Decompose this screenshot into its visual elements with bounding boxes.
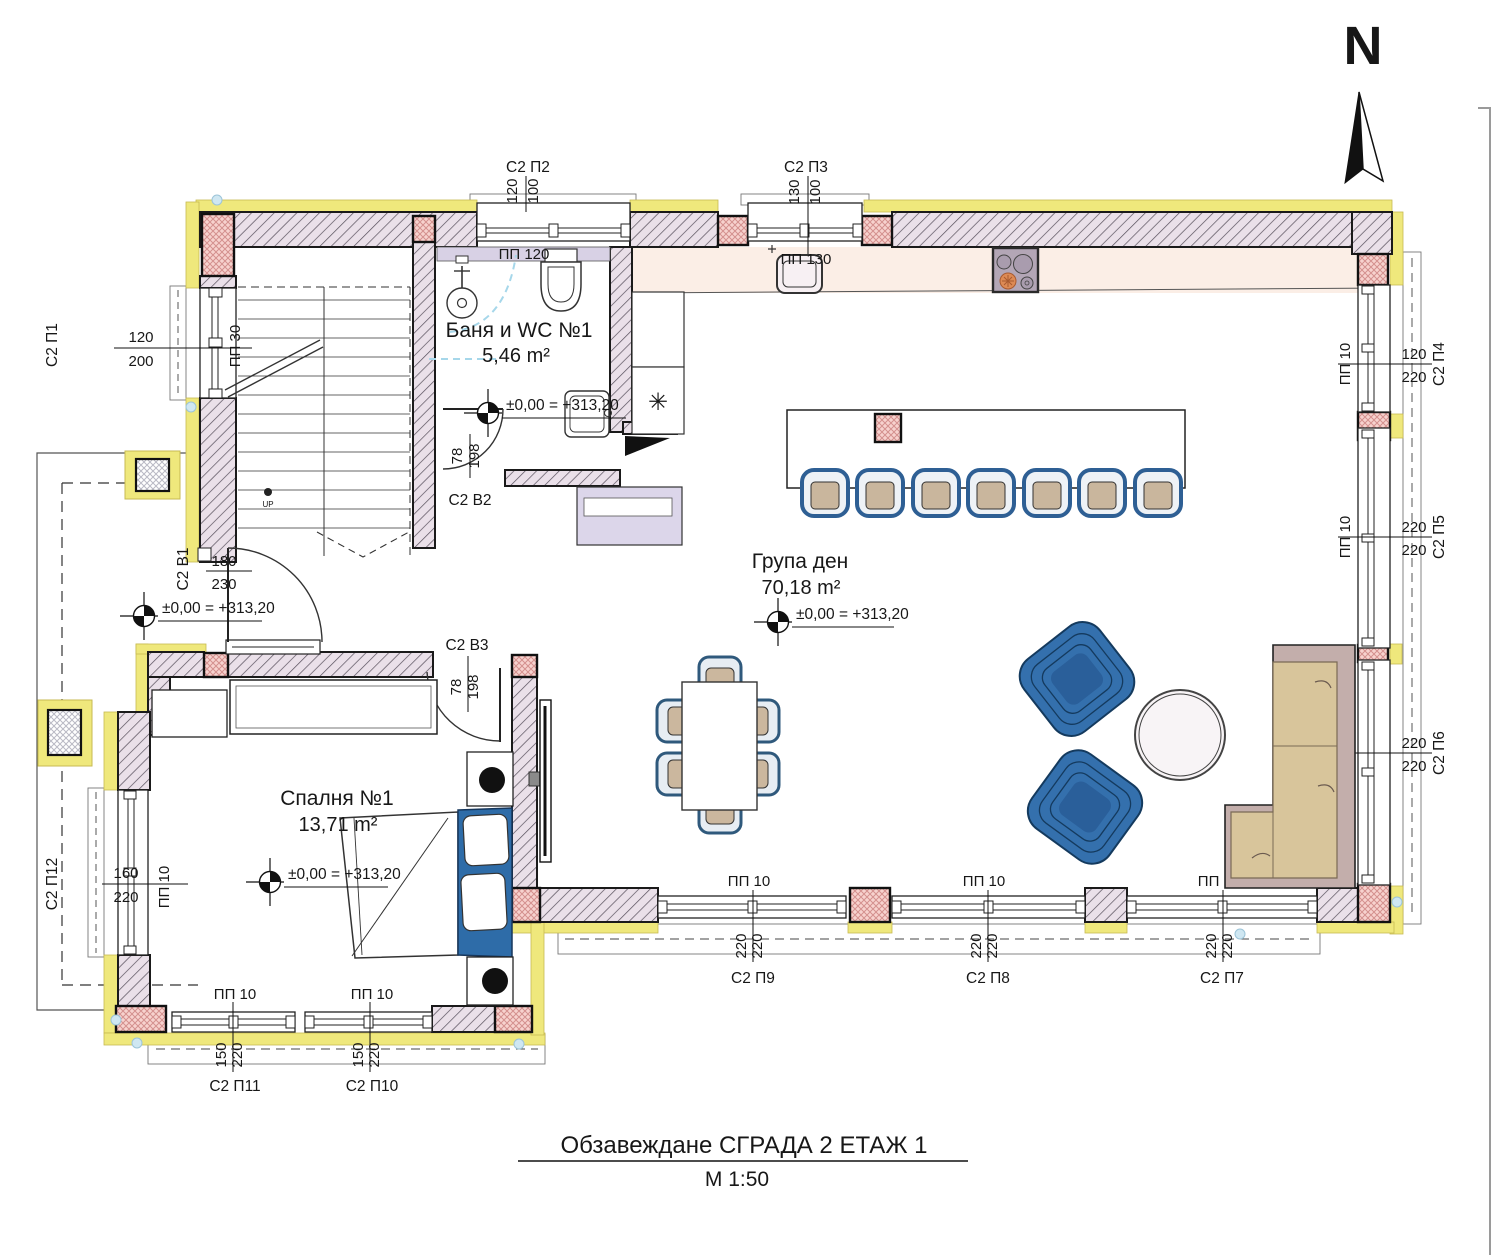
window-p8-dim2: 220 <box>984 933 1001 958</box>
lamp-icon <box>479 767 505 793</box>
door-v1-tag: С2 В1 <box>175 547 192 590</box>
lamp-icon <box>482 968 508 994</box>
elevation-text: ±0,00 = +313,20 <box>506 397 619 414</box>
pillow <box>461 873 508 931</box>
dining-table <box>682 682 757 810</box>
north-arrow: N <box>1344 16 1384 183</box>
drawing-title: Обзавеждане СГРАДА 2 ЕТАЖ 1 <box>560 1132 927 1159</box>
door-v3: С2 В3 78 198 <box>427 637 500 742</box>
room-label-bedroom: Спалня №1 <box>280 787 393 810</box>
window-p3-dim1: 130 <box>786 179 803 204</box>
snowflake-icon: ✳ <box>648 389 668 416</box>
window-p1-pp: ПП 30 <box>227 325 244 367</box>
room-area-living: 70,18 m² <box>762 577 841 599</box>
bar-stool <box>968 470 1014 516</box>
nightstand <box>467 957 513 1005</box>
window-p10-pp: ПП 10 <box>351 986 393 1003</box>
island-column <box>875 414 901 442</box>
room-labels: Баня и WC №1 5,46 m² Група ден 70,18 m² … <box>280 246 848 836</box>
bar-stool <box>1079 470 1125 516</box>
lounge <box>529 613 1355 888</box>
window-p10-dim1: 150 <box>350 1042 367 1067</box>
door-v3-dim2: 198 <box>465 674 482 699</box>
stairs: UP <box>225 287 410 557</box>
window-p11-dim2: 220 <box>229 1042 246 1067</box>
window-p7-tag: С2 П7 <box>1200 970 1244 987</box>
shower-icon <box>447 256 477 318</box>
window-p7-dim1: 220 <box>1203 933 1220 958</box>
sofa <box>1225 645 1355 888</box>
window-p11-dim1: 150 <box>213 1042 230 1067</box>
room-area-bath: 5,46 m² <box>482 345 550 367</box>
door-v1-dim2: 230 <box>211 576 236 593</box>
window-p9-tag: С2 П9 <box>731 970 775 987</box>
window-p1: С2 П1 120 200 ПП 30 <box>44 288 252 398</box>
bar-stool <box>913 470 959 516</box>
dining-set <box>657 657 779 833</box>
drawing-scale: М 1:50 <box>705 1168 769 1191</box>
bar-stool <box>1135 470 1181 516</box>
page-edge <box>1478 108 1490 1255</box>
bar-stool <box>857 470 903 516</box>
north-letter: N <box>1344 16 1383 76</box>
wardrobe <box>152 680 437 737</box>
window-p12-tag: С2 П12 <box>44 858 61 911</box>
pillow <box>463 814 510 866</box>
window-p5-dim1: 220 <box>1401 519 1426 536</box>
north-arrow-light-half <box>1359 92 1383 181</box>
stairs-up-label: UP <box>262 500 273 509</box>
room-label-bath: Баня и WC №1 <box>446 319 593 342</box>
bar-stool <box>1024 470 1070 516</box>
window-p11-tag: С2 П11 <box>209 1078 260 1095</box>
window-p6-dim2: 220 <box>1401 758 1426 775</box>
coffee-table <box>1135 690 1225 780</box>
kitchen-cabinet <box>577 487 682 545</box>
armchair <box>1011 613 1143 745</box>
window-p12: С2 П12 160 220 ПП 10 <box>44 790 188 955</box>
terrace-column <box>38 700 92 766</box>
door-v2: 78 198 С2 В2 <box>443 409 503 509</box>
bar-stools <box>802 470 1181 516</box>
window-p11-pp: ПП 10 <box>214 986 256 1003</box>
bar-stool <box>802 470 848 516</box>
window-p8-pp: ПП 10 <box>963 873 1005 890</box>
door-v1-dim1: 180 <box>211 553 236 570</box>
window-p5-pp: ПП 10 <box>1337 516 1354 558</box>
window-p10-dim2: 220 <box>366 1042 383 1067</box>
window-p9-pp: ПП 10 <box>728 873 770 890</box>
window-p8-dim1: 220 <box>968 933 985 958</box>
elevation-text: ±0,00 = +313,20 <box>288 866 401 883</box>
door-v3-tag: С2 В3 <box>445 637 488 654</box>
window-p5: ПП 10 220 220 С2 П5 <box>1337 428 1448 648</box>
window-p5-tag: С2 П5 <box>1431 515 1448 559</box>
window-p2-dim1: 120 <box>504 178 521 203</box>
door-v2-dim2: 198 <box>466 443 483 468</box>
elevation-mark-entry: ±0,00 = +313,20 <box>120 592 275 640</box>
window-p3: С2 П3 130 100 <box>748 159 862 255</box>
counter-wedge <box>625 436 670 456</box>
window-p1-dim2: 200 <box>128 353 153 370</box>
window-p7-dim2: 220 <box>1219 933 1236 958</box>
label-pp120: ПП 120 <box>499 246 550 263</box>
room-area-bedroom: 13,71 m² <box>299 814 378 836</box>
window-p2-dim2: 100 <box>525 178 542 203</box>
window-p3-tag: С2 П3 <box>784 159 828 176</box>
label-pp130: ПП 130 <box>781 251 832 268</box>
floor-plan-page: С2 П2 120 100 С2 П3 130 100 С2 П1 120 20… <box>0 0 1500 1255</box>
door-v3-dim1: 78 <box>448 679 465 696</box>
window-p4-pp: ПП 10 <box>1337 343 1354 385</box>
window-p12-pp: ПП 10 <box>156 866 173 908</box>
window-p4-dim2: 220 <box>1401 369 1426 386</box>
window-p10-tag: С2 П10 <box>346 1078 399 1095</box>
door-v2-dim1: 78 <box>449 448 466 465</box>
window-p8-tag: С2 П8 <box>966 970 1010 987</box>
window-p6-dim1: 220 <box>1401 735 1426 752</box>
elevation-mark-living: ±0,00 = +313,20 <box>754 598 909 646</box>
window-p4-tag: С2 П4 <box>1431 342 1448 386</box>
terrace-column <box>125 451 180 499</box>
window-p3-dim2: 100 <box>807 179 824 204</box>
nightstand <box>467 752 513 806</box>
window-p2-tag: С2 П2 <box>506 159 550 176</box>
window-p4-dim1: 120 <box>1401 346 1426 363</box>
window-p1-tag: С2 П1 <box>44 323 61 367</box>
elevation-text: ±0,00 = +313,20 <box>796 606 909 623</box>
window-p9-dim1: 220 <box>733 933 750 958</box>
window-p6-tag: С2 П6 <box>1431 731 1448 775</box>
room-label-living: Група ден <box>752 550 849 573</box>
armchair <box>1019 742 1151 873</box>
cooktop-icon <box>993 248 1038 292</box>
floor-plan-svg: С2 П2 120 100 С2 П3 130 100 С2 П1 120 20… <box>0 0 1500 1255</box>
window-p12-dim1: 160 <box>113 865 138 882</box>
window-p5-dim2: 220 <box>1401 542 1426 559</box>
elevation-text: ±0,00 = +313,20 <box>162 600 275 617</box>
door-v2-tag: С2 В2 <box>448 492 491 509</box>
fridge: ✳ <box>632 292 684 434</box>
window-p9-dim2: 220 <box>749 933 766 958</box>
window-p1-dim1: 120 <box>128 329 153 346</box>
title-block: Обзавеждане СГРАДА 2 ЕТАЖ 1 М 1:50 <box>518 1132 968 1191</box>
window-p12-dim2: 220 <box>113 889 138 906</box>
window-p4: ПП 10 120 220 С2 П4 <box>1337 285 1448 412</box>
